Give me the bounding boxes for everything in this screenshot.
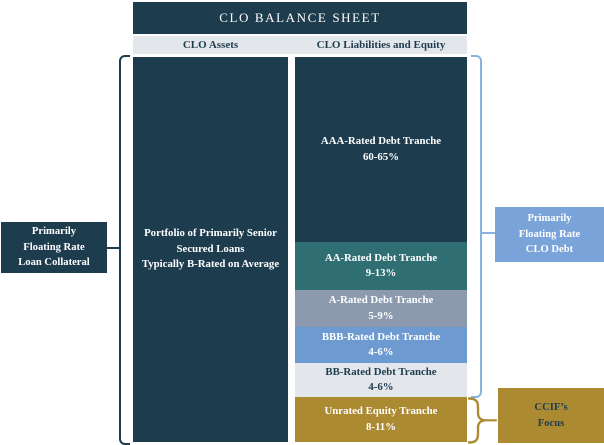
ccif-focus-callout: CCIF’s Focus bbox=[498, 388, 604, 443]
debt-bracket bbox=[471, 55, 482, 398]
tranche-pct: 8-11% bbox=[366, 420, 396, 435]
diagram-title: CLO BALANCE SHEET bbox=[133, 2, 467, 34]
assets-column: Portfolio of Primarily Senior Secured Lo… bbox=[133, 57, 288, 442]
assets-body-line: Portfolio of Primarily Senior bbox=[142, 226, 279, 242]
tranche-label: AAA-Rated Debt Tranche bbox=[321, 134, 441, 149]
loan-collateral-text: Primarily Floating Rate Loan Collateral bbox=[18, 224, 90, 272]
assets-body-line: Typically B-Rated on Average bbox=[142, 257, 279, 273]
tranche-bb: BB-Rated Debt Tranche 4-6% bbox=[295, 363, 467, 397]
assets-column-header: CLO Assets bbox=[133, 36, 288, 54]
assets-body-line: Secured Loans bbox=[142, 242, 279, 258]
tranche-pct: 9-13% bbox=[366, 266, 397, 281]
debt-bracket-tick bbox=[480, 232, 495, 234]
clo-debt-callout: Primarily Floating Rate CLO Debt bbox=[495, 207, 604, 262]
assets-bracket bbox=[119, 55, 130, 445]
tranche-a: A-Rated Debt Tranche 5-9% bbox=[295, 290, 467, 327]
tranche-unrated-equity: Unrated Equity Tranche 8-11% bbox=[295, 397, 467, 442]
tranche-label: AA-Rated Debt Tranche bbox=[325, 251, 437, 266]
callout-line: Floating Rate bbox=[519, 227, 581, 243]
clo-balance-sheet-diagram: CLO BALANCE SHEET CLO Assets CLO Liabili… bbox=[0, 0, 604, 445]
tranche-aa: AA-Rated Debt Tranche 9-13% bbox=[295, 242, 467, 290]
assets-bracket-tick bbox=[107, 247, 120, 249]
column-gap bbox=[288, 36, 295, 54]
tranche-label: Unrated Equity Tranche bbox=[325, 404, 438, 419]
column-header-bar: CLO Assets CLO Liabilities and Equity bbox=[133, 36, 467, 54]
tranche-pct: 60-65% bbox=[363, 150, 399, 165]
assets-body-text: Portfolio of Primarily Senior Secured Lo… bbox=[142, 226, 279, 273]
liabilities-column: AAA-Rated Debt Tranche 60-65% AA-Rated D… bbox=[295, 57, 467, 442]
callout-line: Floating Rate bbox=[18, 240, 90, 256]
tranche-label: BBB-Rated Debt Tranche bbox=[322, 330, 440, 345]
callout-line: Focus bbox=[534, 416, 567, 432]
loan-collateral-callout: Primarily Floating Rate Loan Collateral bbox=[1, 222, 107, 273]
callout-line: Primarily bbox=[519, 211, 581, 227]
tranche-aaa: AAA-Rated Debt Tranche 60-65% bbox=[295, 57, 467, 242]
tranche-pct: 5-9% bbox=[368, 309, 393, 324]
tranche-pct: 4-6% bbox=[368, 345, 393, 360]
liabilities-column-header: CLO Liabilities and Equity bbox=[295, 36, 467, 54]
tranche-pct: 4-6% bbox=[368, 380, 393, 395]
callout-line: Loan Collateral bbox=[18, 255, 90, 271]
callout-line: CCIF’s bbox=[534, 400, 567, 416]
tranche-label: A-Rated Debt Tranche bbox=[329, 293, 434, 308]
ccif-focus-text: CCIF’s Focus bbox=[534, 400, 567, 432]
clo-debt-text: Primarily Floating Rate CLO Debt bbox=[519, 211, 581, 259]
tranche-bbb: BBB-Rated Debt Tranche 4-6% bbox=[295, 327, 467, 363]
tranche-label: BB-Rated Debt Tranche bbox=[325, 365, 436, 380]
equity-brace bbox=[466, 397, 498, 444]
callout-line: Primarily bbox=[18, 224, 90, 240]
callout-line: CLO Debt bbox=[519, 242, 581, 258]
